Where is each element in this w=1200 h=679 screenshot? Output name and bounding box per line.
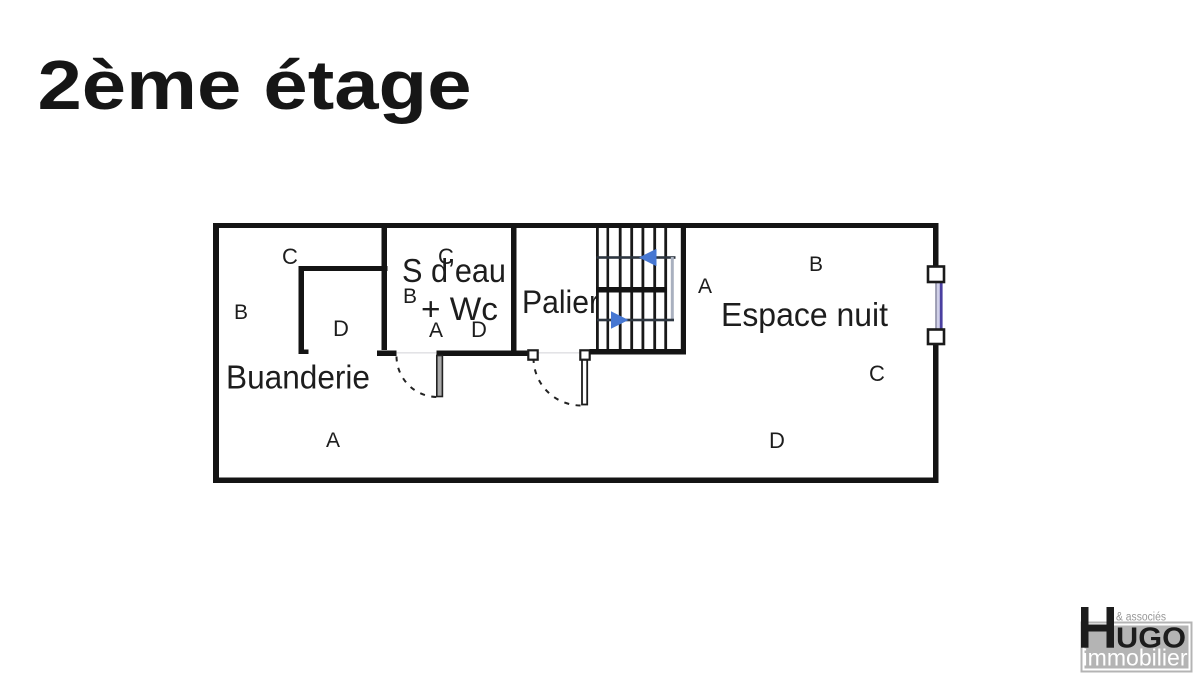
svg-text:Buanderie: Buanderie — [226, 359, 370, 396]
svg-text:A: A — [698, 275, 712, 298]
svg-text:B: B — [234, 301, 248, 324]
svg-text:A: A — [326, 429, 340, 452]
svg-text:D: D — [471, 317, 487, 342]
svg-text:Espace nuit: Espace nuit — [721, 296, 888, 333]
svg-text:immobilier: immobilier — [1083, 645, 1188, 671]
svg-text:D: D — [333, 316, 349, 341]
svg-text:A: A — [429, 319, 443, 342]
svg-text:D: D — [769, 428, 785, 453]
svg-text:2ème étage: 2ème étage — [38, 46, 472, 124]
svg-text:Palier: Palier — [522, 284, 599, 320]
svg-text:B: B — [403, 285, 417, 308]
svg-text:C: C — [869, 361, 885, 386]
svg-text:C: C — [282, 244, 298, 269]
svg-text:B: B — [809, 253, 823, 276]
svg-text:S d’eau: S d’eau — [402, 252, 506, 289]
svg-text:& associés: & associés — [1116, 612, 1166, 624]
svg-text:C: C — [438, 244, 454, 269]
